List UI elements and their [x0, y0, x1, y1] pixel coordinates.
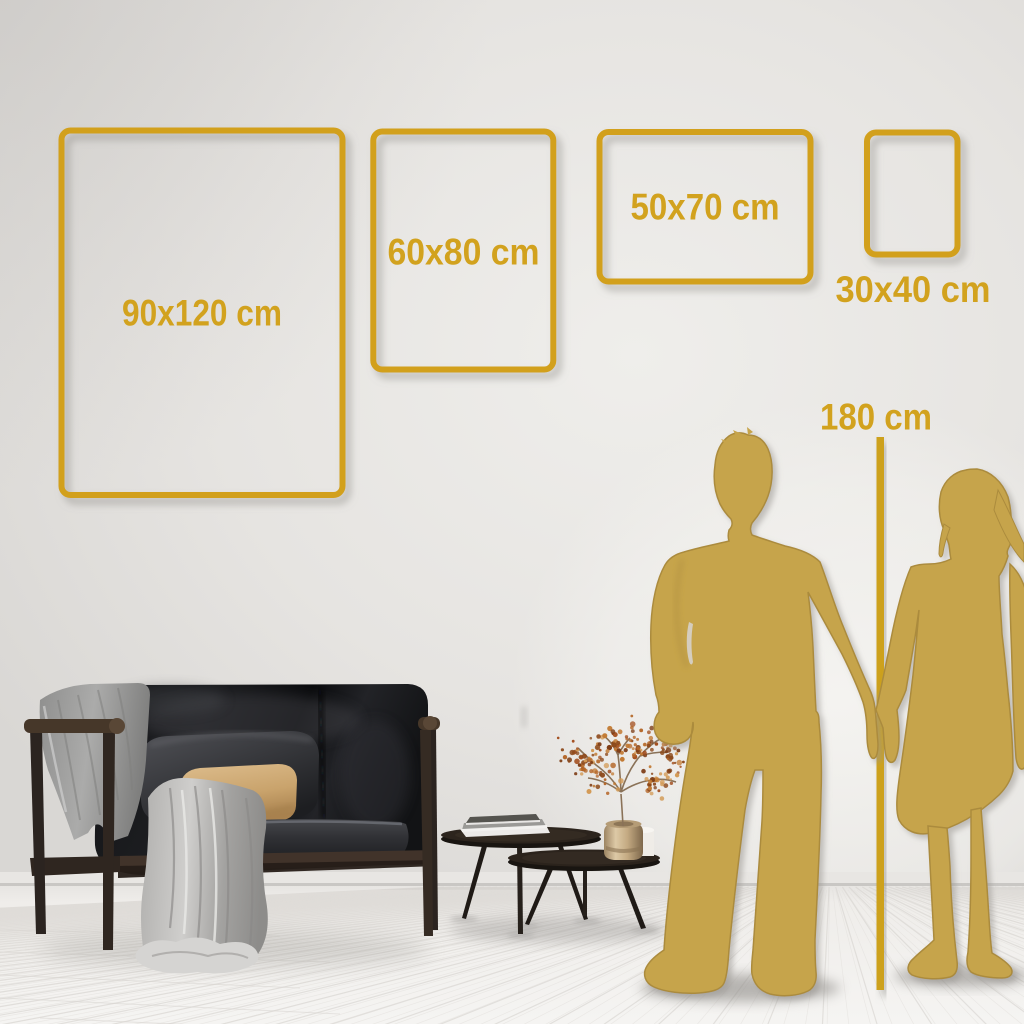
svg-text:60x80 cm: 60x80 cm: [388, 232, 540, 273]
svg-text:50x70 cm: 50x70 cm: [631, 187, 780, 228]
svg-text:180 cm: 180 cm: [820, 397, 932, 438]
svg-text:90x120 cm: 90x120 cm: [122, 293, 282, 334]
svg-text:30x40 cm: 30x40 cm: [836, 269, 991, 310]
